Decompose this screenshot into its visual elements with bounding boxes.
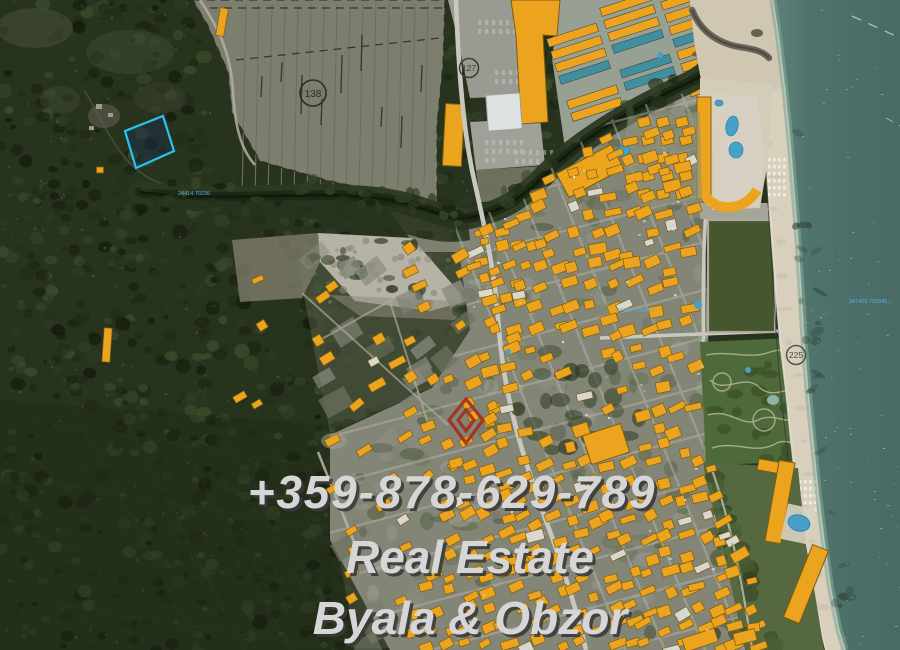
svg-text:Byala & Obzor: Byala & Obzor [313, 592, 630, 644]
svg-text:127: 127 [462, 63, 476, 73]
svg-text:+359-878-629-789: +359-878-629-789 [248, 466, 657, 518]
svg-text:138: 138 [305, 89, 322, 100]
svg-text:347403 753346: 347403 753346 [849, 299, 887, 305]
svg-text:Real Estate: Real Estate [346, 531, 594, 583]
svg-text:347403 703346: 347403 703346 [617, 308, 652, 314]
svg-text:24414 70236: 24414 70236 [178, 191, 210, 197]
svg-text:225: 225 [789, 350, 803, 360]
